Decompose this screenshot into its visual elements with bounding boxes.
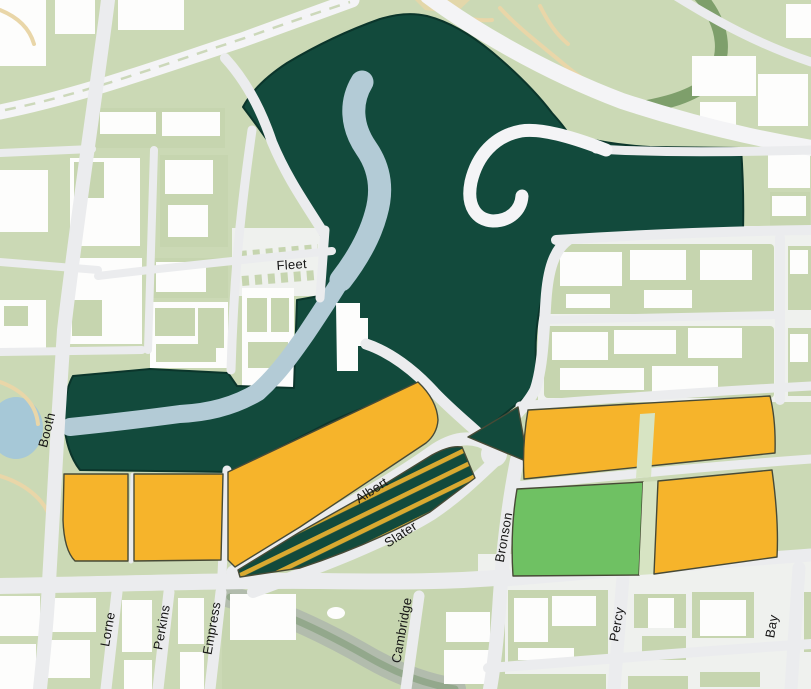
map-canvas: Fleet Booth Lorne Perkins Empress Albert… [0,0,811,689]
block-green-bronson-south [512,482,643,576]
street-bay [791,568,799,689]
block-orange-bronson-south [654,470,777,574]
street-label-fleet: Fleet [276,256,307,273]
parcel-orange-west-2 [134,474,223,561]
zoning-map: Fleet Booth Lorne Perkins Empress Albert… [0,0,811,689]
parcel-orange-west-1 [63,474,128,561]
